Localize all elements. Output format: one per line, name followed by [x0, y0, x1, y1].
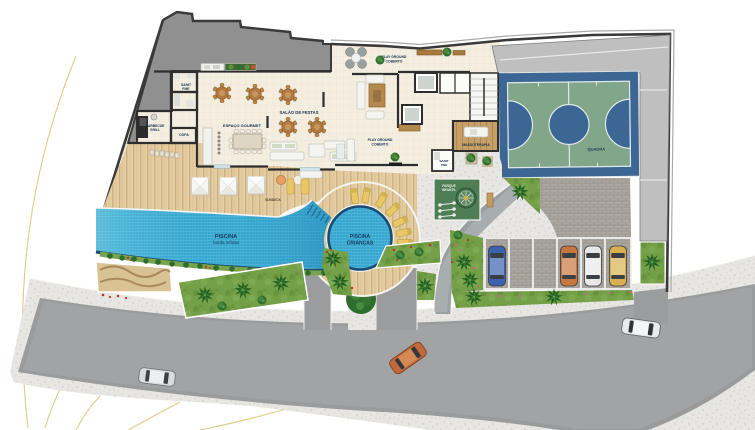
svg-text:COPA: COPA — [179, 133, 189, 137]
svg-text:ESPAÇO GOURMET: ESPAÇO GOURMET — [223, 123, 262, 128]
svg-text:borda infinita: borda infinita — [213, 240, 239, 245]
svg-text:CRIANÇAS: CRIANÇAS — [347, 241, 374, 247]
svg-text:QUADRA: QUADRA — [587, 147, 605, 152]
svg-text:INFANTIL: INFANTIL — [442, 188, 456, 192]
svg-text:FME: FME — [182, 87, 190, 91]
svg-text:MASSOTERAPIA: MASSOTERAPIA — [462, 143, 490, 147]
svg-text:COBERTO: COBERTO — [386, 60, 403, 64]
svg-text:PLAY GROUND: PLAY GROUND — [382, 55, 407, 59]
svg-text:SUNDECK: SUNDECK — [265, 198, 281, 202]
svg-text:PISCINA: PISCINA — [350, 234, 371, 240]
svg-text:PLAY GROUND: PLAY GROUND — [368, 138, 393, 142]
svg-text:PNE: PNE — [441, 163, 447, 167]
svg-text:SALÃO DE FESTAS: SALÃO DE FESTAS — [279, 110, 318, 115]
svg-text:COBERTO: COBERTO — [372, 143, 389, 147]
svg-text:GRILL: GRILL — [150, 128, 160, 132]
